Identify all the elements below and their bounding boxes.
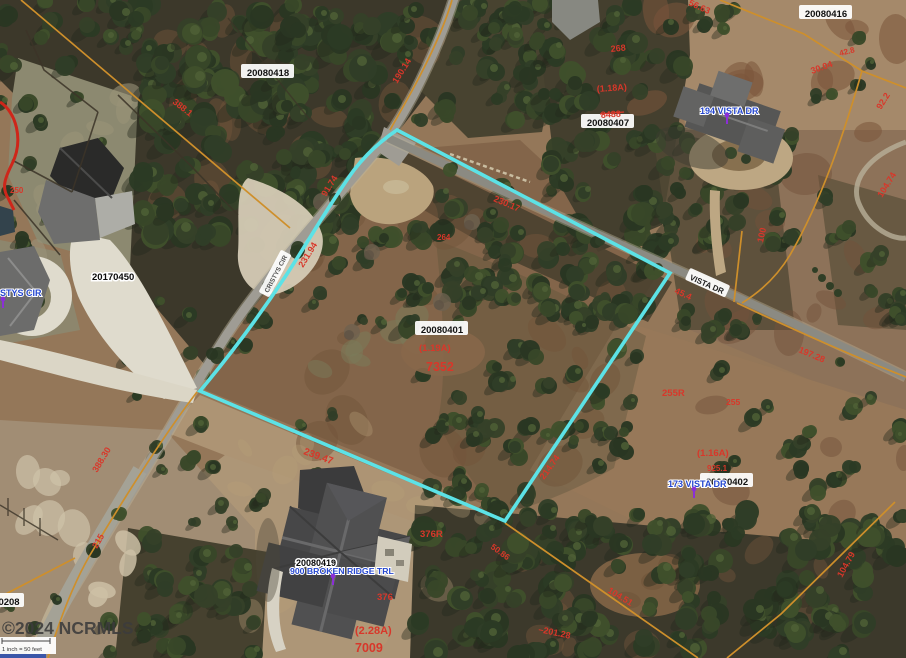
svg-text:173 VISTA DR: 173 VISTA DR [668, 479, 727, 489]
svg-text:268: 268 [610, 42, 626, 54]
svg-text:255R: 255R [662, 388, 685, 399]
svg-text:8488: 8488 [600, 109, 621, 120]
svg-text:20080416: 20080416 [805, 9, 847, 20]
svg-text:©2024 NCRMLS: ©2024 NCRMLS [2, 618, 134, 638]
svg-text:20170450: 20170450 [92, 272, 134, 283]
svg-text:900 BROKEN RIDGE TRL: 900 BROKEN RIDGE TRL [290, 566, 394, 576]
svg-text:376: 376 [377, 592, 393, 603]
svg-text:376R: 376R [420, 529, 443, 540]
svg-text:STYS CIR: STYS CIR [0, 288, 42, 298]
svg-text:255: 255 [726, 397, 740, 407]
svg-text:20080407: 20080407 [587, 118, 629, 129]
svg-text:(2.28A): (2.28A) [355, 625, 392, 637]
svg-text:20080401: 20080401 [421, 325, 464, 336]
svg-text:(1.18A): (1.18A) [596, 82, 627, 94]
svg-text:(1.19A): (1.19A) [419, 343, 451, 354]
svg-text:250: 250 [10, 186, 24, 195]
svg-text:7009: 7009 [355, 641, 383, 655]
svg-text:(1.16A): (1.16A) [697, 448, 729, 459]
svg-text:1 inch = 50 feet: 1 inch = 50 feet [2, 647, 42, 653]
svg-text:0208: 0208 [0, 597, 20, 608]
svg-text:925.1: 925.1 [707, 464, 728, 473]
svg-text:194 VISTA DR: 194 VISTA DR [700, 106, 759, 116]
svg-text:264: 264 [437, 233, 451, 242]
svg-text:20080418: 20080418 [247, 68, 289, 79]
svg-text:7352: 7352 [426, 360, 454, 374]
